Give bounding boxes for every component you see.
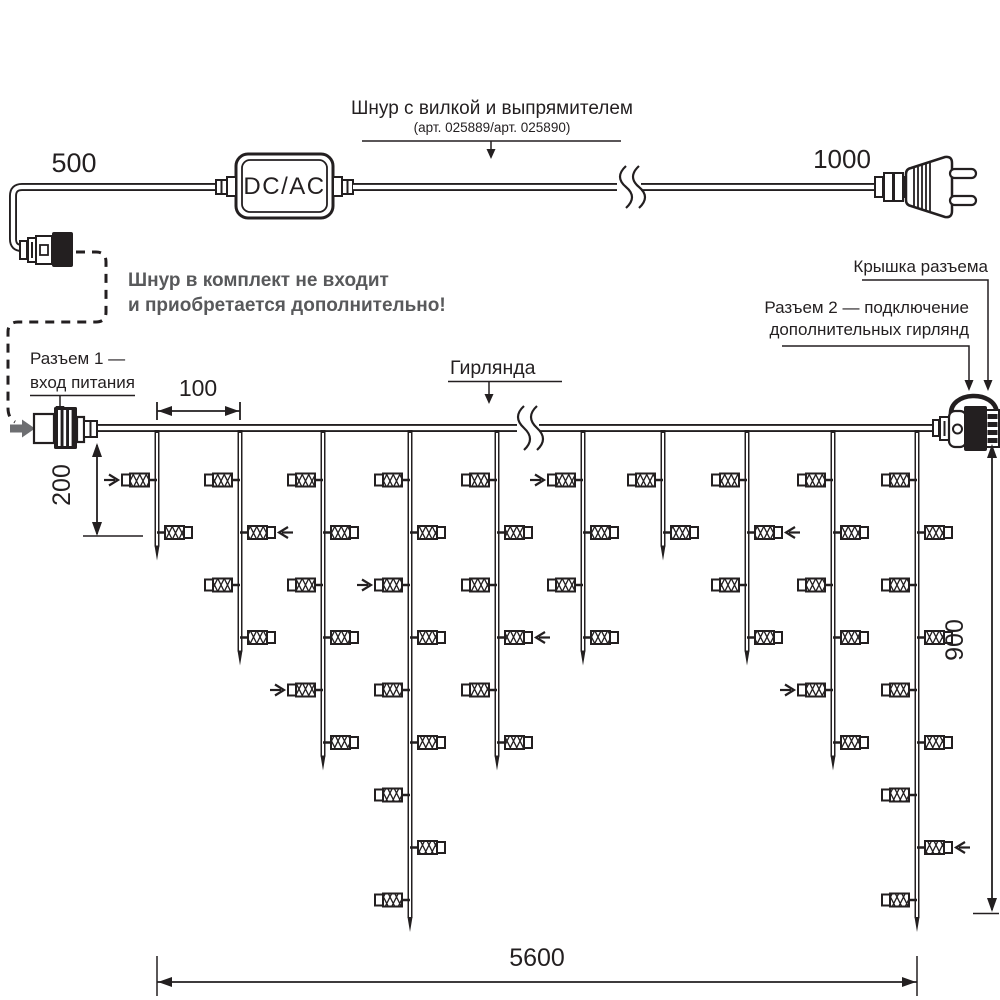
lamp-cap [350, 527, 358, 538]
drop-tip [581, 651, 586, 666]
power-cord-assembly: DC/AC [13, 98, 976, 267]
led-lamp [410, 631, 445, 644]
lamp-body [383, 474, 402, 487]
lamp-cap [882, 895, 890, 906]
lamp-body [248, 631, 267, 644]
icicle-drop [205, 430, 293, 666]
drop-tip [831, 756, 836, 771]
led-lamp [375, 684, 410, 697]
lamp-body [806, 474, 825, 487]
led-lamp [747, 526, 782, 539]
lamp-body [165, 526, 184, 539]
drop-tip [495, 756, 500, 771]
lamp-body [890, 894, 909, 907]
lamp-cap [462, 685, 470, 696]
led-lamp [798, 579, 833, 592]
connector2-callout: Разъем 2 — подключение дополнительных ги… [764, 298, 973, 391]
lamp-body [755, 631, 774, 644]
led-lamp [712, 474, 747, 487]
drop-tip [661, 546, 666, 561]
lamp-cap [437, 737, 445, 748]
lamp-body [556, 579, 575, 592]
lamp-body [383, 789, 402, 802]
led-lamp [375, 894, 410, 907]
lamp-body [418, 841, 437, 854]
lamp-body [890, 789, 909, 802]
led-lamp [462, 684, 497, 697]
led-lamp [375, 789, 410, 802]
lamp-cap [882, 790, 890, 801]
connector1-label-line2: вход питания [30, 373, 135, 392]
dimension-5600: 5600 [157, 944, 917, 996]
note-not-included: Шнур в комплект не входит и приобретаетс… [128, 270, 446, 316]
led-lamp [882, 474, 917, 487]
converter-label: DC/AC [243, 173, 325, 200]
lamp-body [890, 474, 909, 487]
led-lamp [240, 526, 275, 539]
connector1-label-line1: Разъем 1 — [30, 349, 125, 368]
gray-input-arrow-icon [10, 420, 35, 438]
cord-title-callout: Шнур с вилкой и выпрямителем (арт. 02588… [351, 98, 633, 159]
lamp-cap [524, 737, 532, 748]
led-lamp [497, 736, 532, 749]
lamp-cap [437, 842, 445, 853]
lamp-body [636, 474, 655, 487]
mains-plug [875, 157, 976, 217]
lamp-body [296, 474, 315, 487]
led-lamp [663, 526, 698, 539]
led-lamp [323, 736, 358, 749]
lamp-cap [350, 632, 358, 643]
lamp-cap [350, 737, 358, 748]
lamp-cap [205, 580, 213, 591]
lamp-body [470, 684, 489, 697]
lamp-cap [798, 685, 806, 696]
connector2-label-line1: Разъем 2 — подключение [764, 298, 969, 317]
led-lamp [833, 631, 868, 644]
led-lamp [157, 526, 192, 539]
icicle-drops [104, 430, 970, 932]
garland-main-wire [95, 406, 933, 450]
dim-5600-label: 5600 [509, 944, 565, 972]
lamp-cap [690, 527, 698, 538]
lamp-cap [524, 632, 532, 643]
icicle-drop [357, 430, 445, 932]
icicle-drop [530, 430, 618, 666]
dim-500-label: 500 [51, 148, 96, 178]
down-arrow-icon [965, 380, 974, 391]
lamp-body [505, 736, 524, 749]
lamp-cap [860, 737, 868, 748]
lamp-body [470, 474, 489, 487]
led-lamp [323, 631, 358, 644]
garland-label: Гирлянда [450, 357, 536, 379]
lamp-cap [628, 475, 636, 486]
garland-end-connector [933, 396, 999, 451]
led-lamp [288, 579, 323, 592]
icicle-drop [712, 430, 800, 666]
garland-callout: Гирлянда [448, 357, 562, 404]
drop-tip [915, 917, 920, 932]
led-lamp [497, 526, 532, 539]
wiring-diagram: DC/AC [0, 0, 1000, 1000]
lamp-cap [288, 685, 296, 696]
lamp-cap [860, 632, 868, 643]
drop-tip [155, 546, 160, 561]
drop-tip [408, 917, 413, 932]
led-lamp [747, 631, 782, 644]
led-lamp [240, 631, 275, 644]
lamp-cap [267, 527, 275, 538]
lamp-cap [184, 527, 192, 538]
led-lamp [410, 736, 445, 749]
lamp-body [841, 526, 860, 539]
note-line1: Шнур в комплект не входит [128, 270, 389, 291]
lamp-body [720, 474, 739, 487]
lamp-body [925, 736, 944, 749]
lamp-body [841, 736, 860, 749]
lamp-cap [860, 527, 868, 538]
lamp-body [296, 579, 315, 592]
led-lamp [323, 526, 358, 539]
lamp-cap [798, 580, 806, 591]
lamp-body [383, 894, 402, 907]
lamp-cap [610, 632, 618, 643]
lamp-cap [944, 737, 952, 748]
led-lamp [882, 579, 917, 592]
led-lamp [548, 579, 583, 592]
icicle-drop [628, 430, 698, 561]
led-lamp [833, 736, 868, 749]
drop-tip [238, 651, 243, 666]
dc-ac-converter: DC/AC [216, 154, 353, 218]
lamp-body [720, 579, 739, 592]
lamp-body [505, 631, 524, 644]
lamp-cap [437, 527, 445, 538]
led-lamp [917, 736, 952, 749]
lamp-cap [524, 527, 532, 538]
lamp-body [470, 579, 489, 592]
lamp-body [925, 841, 944, 854]
lamp-body [418, 526, 437, 539]
cord-title: Шнур с вилкой и выпрямителем [351, 98, 633, 119]
led-lamp [410, 526, 445, 539]
dim-200-label: 200 [48, 464, 76, 506]
lamp-body [331, 736, 350, 749]
connector1-callout: Разъем 1 — вход питания [30, 349, 135, 416]
down-arrow-icon [487, 149, 496, 159]
dashed-cord-path [8, 252, 106, 422]
lamp-body [755, 526, 774, 539]
lamp-cap [944, 842, 952, 853]
led-lamp [882, 684, 917, 697]
lamp-body [925, 526, 944, 539]
lamp-body [890, 684, 909, 697]
dim-100-label: 100 [179, 375, 217, 401]
icicle-drop [882, 430, 970, 932]
lamp-body [418, 736, 437, 749]
led-lamp [798, 684, 833, 697]
lamp-cap [882, 580, 890, 591]
lamp-cap [548, 475, 556, 486]
lamp-body [806, 579, 825, 592]
led-lamp [917, 526, 952, 539]
plug-prong [950, 196, 976, 205]
dim-1000-label: 1000 [813, 144, 871, 174]
lamp-cap [882, 685, 890, 696]
lamp-body [383, 684, 402, 697]
lamp-cap [944, 527, 952, 538]
lamp-cap [375, 895, 383, 906]
cord-subtitle: (арт. 025889/арт. 025890) [414, 120, 571, 135]
lamp-body [296, 684, 315, 697]
lamp-body [331, 526, 350, 539]
drop-tip [745, 651, 750, 666]
wire-break-mark [518, 406, 530, 450]
connector2-label-line2: дополнительных гирлянд [769, 320, 969, 339]
led-lamp [882, 894, 917, 907]
cord-break-mark [620, 166, 632, 208]
lamp-body [671, 526, 690, 539]
led-lamp [375, 474, 410, 487]
cord-output-connector [20, 232, 73, 267]
plug-prong [950, 169, 976, 178]
lamp-cap [462, 580, 470, 591]
led-lamp [122, 474, 157, 487]
led-lamp [497, 631, 532, 644]
led-lamp [583, 526, 618, 539]
led-lamp [882, 789, 917, 802]
lamp-cap [774, 632, 782, 643]
lamp-body [556, 474, 575, 487]
lamp-body [591, 526, 610, 539]
down-arrow-icon [984, 380, 993, 391]
lamp-body [841, 631, 860, 644]
lamp-cap [288, 580, 296, 591]
down-arrow-icon [485, 394, 494, 404]
led-lamp [375, 579, 410, 592]
dimension-200: 200 [48, 443, 143, 536]
lamp-body [505, 526, 524, 539]
led-lamp [583, 631, 618, 644]
lamp-body [130, 474, 149, 487]
garland-input-connector [10, 407, 97, 449]
lamp-cap [882, 475, 890, 486]
lamp-cap [267, 632, 275, 643]
lamp-body [213, 474, 232, 487]
led-lamp [205, 579, 240, 592]
led-lamp [288, 474, 323, 487]
lamp-body [213, 579, 232, 592]
lamp-cap [462, 475, 470, 486]
led-lamp [917, 841, 952, 854]
led-lamp [462, 579, 497, 592]
lamp-body [806, 684, 825, 697]
led-lamp [798, 474, 833, 487]
lamp-body [591, 631, 610, 644]
lamp-cap [712, 580, 720, 591]
lamp-cap [610, 527, 618, 538]
dimension-100: 100 [157, 375, 240, 420]
led-lamp [410, 841, 445, 854]
icicle-drop [780, 430, 868, 771]
lamp-cap [375, 475, 383, 486]
dim-900-label: 900 [941, 619, 969, 661]
cord-1000-segment [353, 166, 877, 208]
icicle-drop [104, 430, 192, 561]
lamp-cap [375, 685, 383, 696]
lamp-cap [712, 475, 720, 486]
led-lamp [628, 474, 663, 487]
lamp-cap [798, 475, 806, 486]
led-lamp [288, 684, 323, 697]
lamp-cap [774, 527, 782, 538]
diagram-page: DC/AC [0, 0, 1000, 1000]
lamp-cap [288, 475, 296, 486]
drop-tip [321, 756, 326, 771]
lamp-body [248, 526, 267, 539]
led-lamp [548, 474, 583, 487]
icicle-drop [270, 430, 358, 771]
lamp-body [331, 631, 350, 644]
lamp-cap [375, 790, 383, 801]
led-lamp [205, 474, 240, 487]
lamp-cap [548, 580, 556, 591]
led-lamp [462, 474, 497, 487]
lamp-cap [437, 632, 445, 643]
lamp-body [890, 579, 909, 592]
lamp-cap [205, 475, 213, 486]
note-line2: и приобретается дополнительно! [128, 295, 446, 316]
lamp-body [383, 579, 402, 592]
led-lamp [712, 579, 747, 592]
led-lamp [833, 526, 868, 539]
lamp-body [418, 631, 437, 644]
lamp-cap [375, 580, 383, 591]
lamp-cap [122, 475, 130, 486]
cap-label: Крышка разъема [853, 257, 988, 276]
